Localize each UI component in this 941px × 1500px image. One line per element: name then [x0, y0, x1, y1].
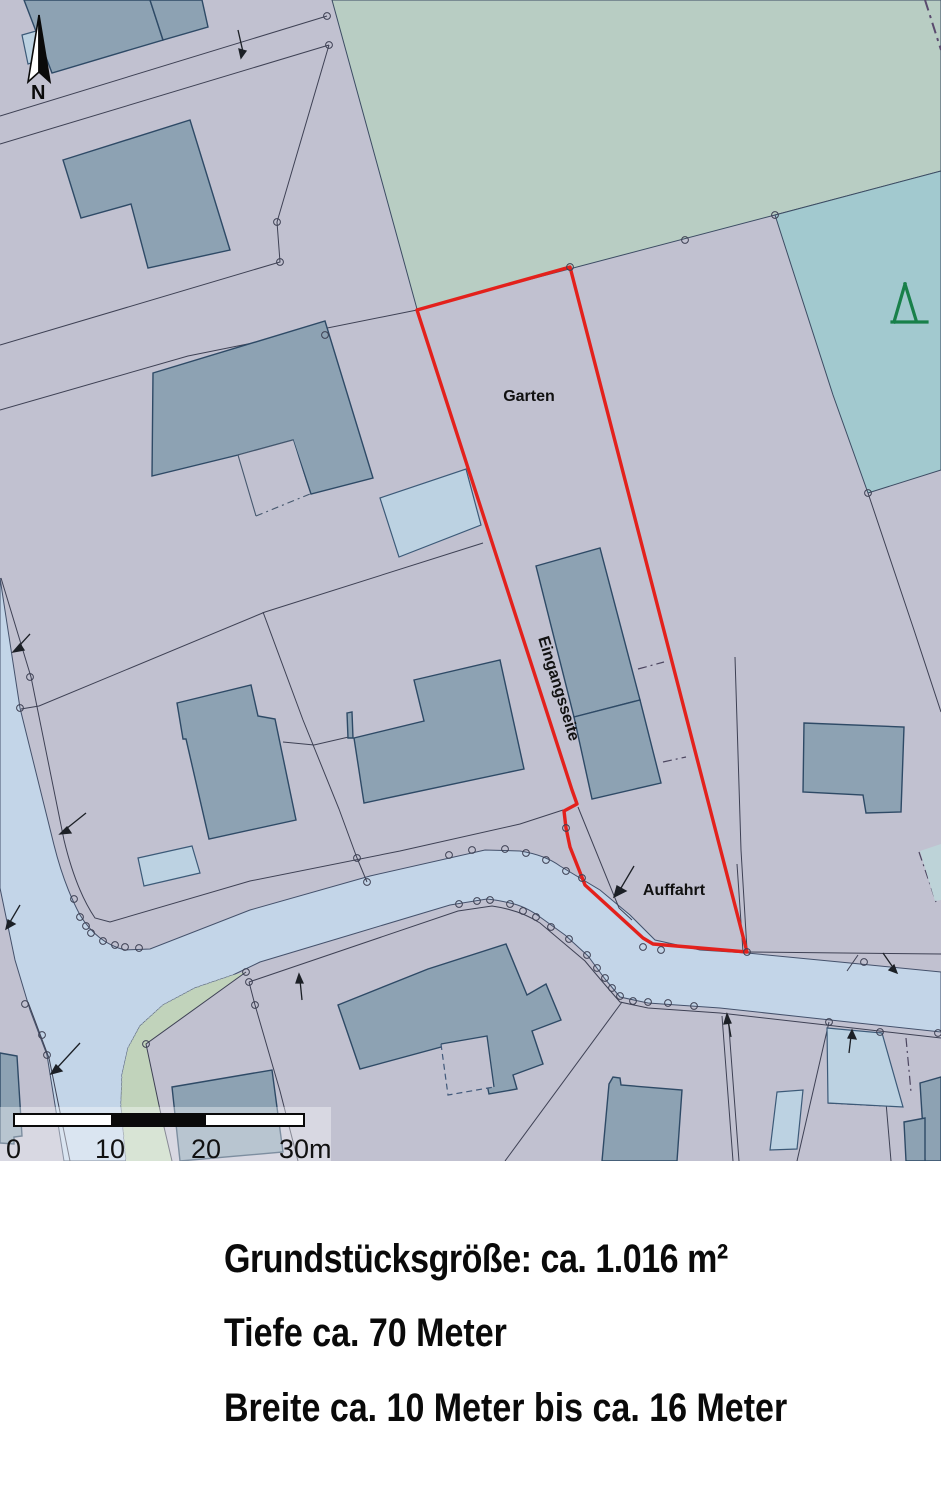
svg-text:Auffahrt: Auffahrt: [643, 882, 706, 899]
svg-text:20: 20: [191, 1134, 221, 1161]
svg-text:10: 10: [95, 1134, 125, 1161]
svg-text:N: N: [31, 82, 45, 104]
svg-text:0: 0: [6, 1134, 21, 1161]
svg-text:Garten: Garten: [503, 388, 555, 405]
svg-text:30m: 30m: [279, 1134, 332, 1161]
